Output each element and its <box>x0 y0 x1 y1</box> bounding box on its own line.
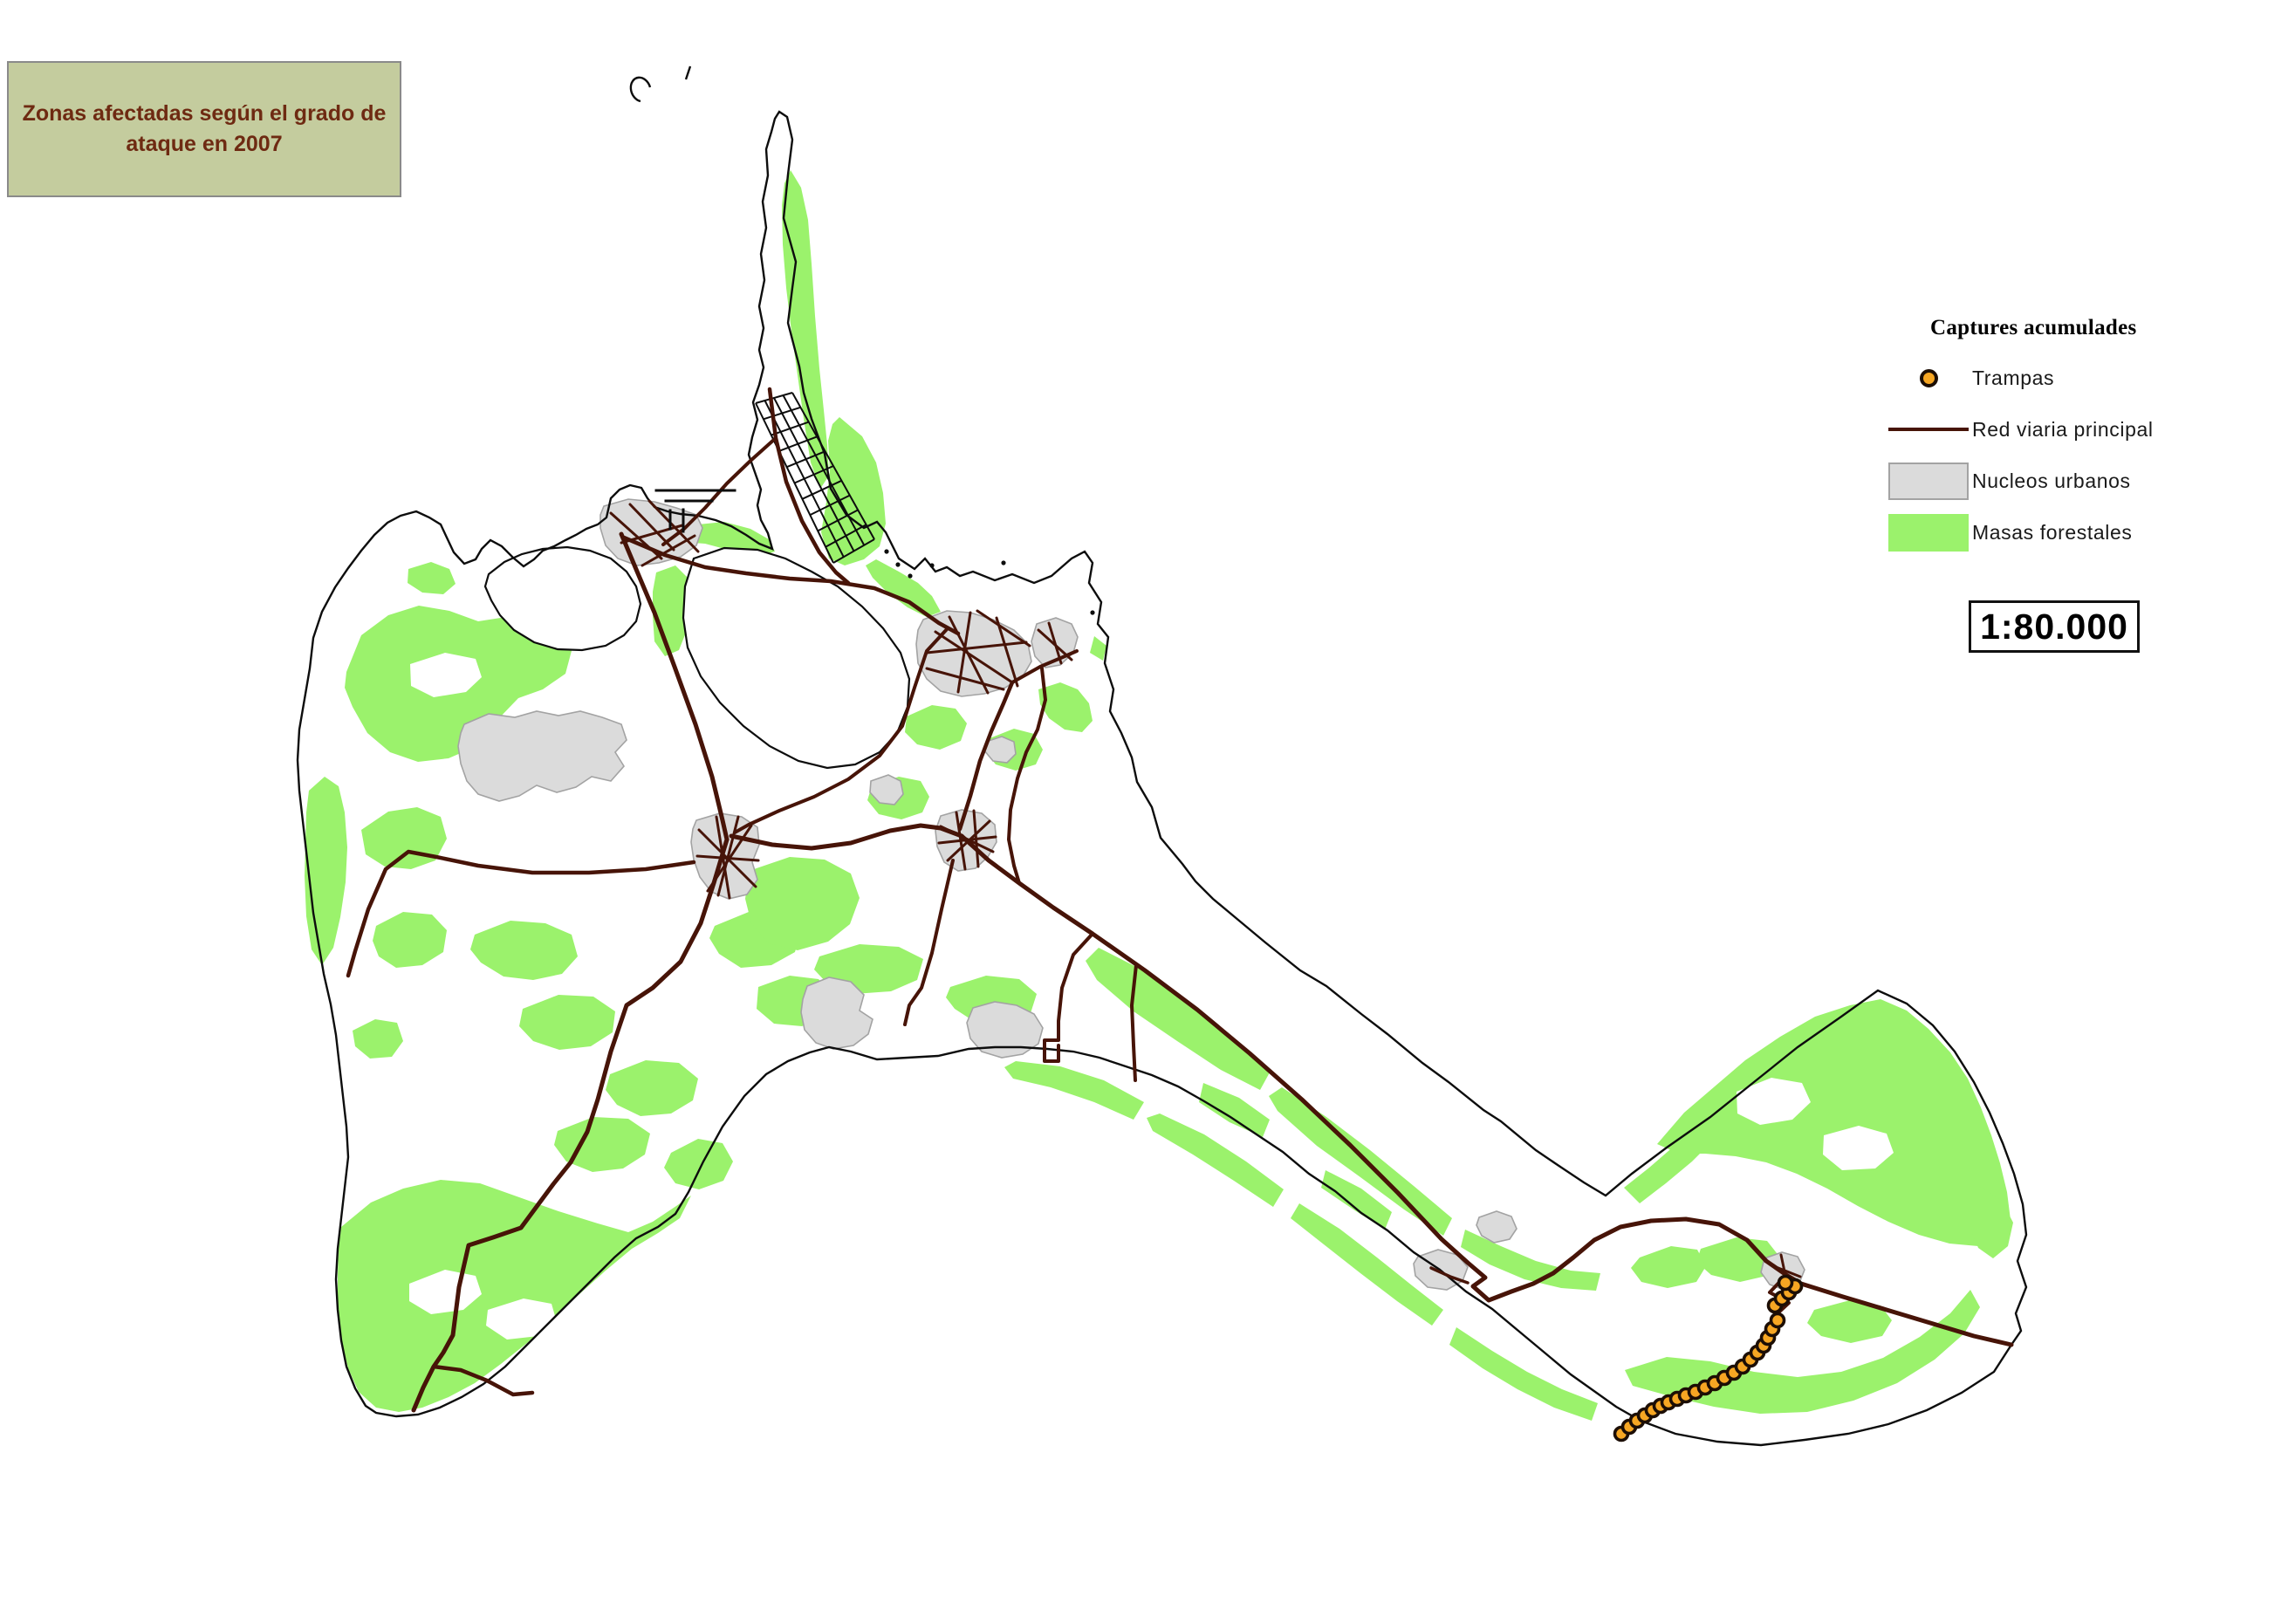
legend-label: Nucleos urbanos <box>1972 469 2131 493</box>
legend: Captures acumulades Trampas Red viaria p… <box>1885 316 2251 564</box>
map-canvas: Zonas afectadas según el grado de ataque… <box>0 0 2295 1624</box>
legend-item-masas-forestales: Masas forestales <box>1885 512 2251 552</box>
scale-indicator: 1:80.000 <box>1969 600 2140 653</box>
scale-text: 1:80.000 <box>1980 606 2128 648</box>
urban-symbol-cell <box>1885 463 1972 500</box>
trap-dot-icon <box>1920 369 1938 387</box>
road-line-icon <box>1888 428 1969 431</box>
map-title-line2: ataque en 2007 <box>126 129 282 160</box>
trap-symbol-cell <box>1885 369 1972 387</box>
legend-label: Masas forestales <box>1972 521 2132 545</box>
map-title-line1: Zonas afectadas según el grado de <box>23 99 387 129</box>
island-map <box>0 0 2295 1624</box>
urban-swatch <box>1888 463 1969 500</box>
legend-item-nucleos-urbanos: Nucleos urbanos <box>1885 461 2251 501</box>
legend-label: Trampas <box>1972 367 2054 390</box>
legend-item-red-viaria: Red viaria principal <box>1885 409 2251 449</box>
legend-item-trampas: Trampas <box>1885 358 2251 398</box>
forest-swatch <box>1888 514 1969 552</box>
forest-symbol-cell <box>1885 514 1972 552</box>
map-title-box: Zonas afectadas según el grado de ataque… <box>7 61 401 197</box>
legend-label: Red viaria principal <box>1972 418 2154 442</box>
road-symbol-cell <box>1885 428 1972 431</box>
legend-title: Captures acumulades <box>1930 316 2251 340</box>
